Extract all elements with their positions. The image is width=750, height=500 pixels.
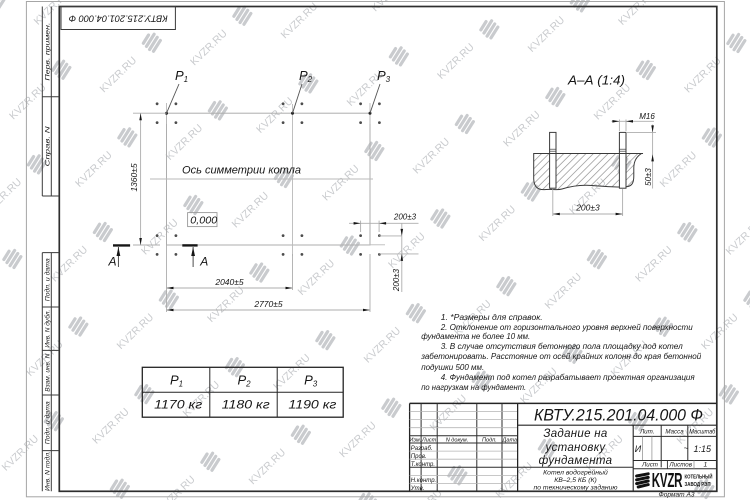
svg-text:Изм.: Изм. <box>409 437 421 443</box>
svg-text:1190 кг: 1190 кг <box>288 398 336 412</box>
svg-text:4. Фундамент под котел разраб: 4. Фундамент под котел разрабатывает про… <box>441 372 695 382</box>
svg-text:установку: установку <box>545 442 607 454</box>
svg-text:A: A <box>199 255 208 269</box>
svg-text:подушки 500 мм.: подушки 500 мм. <box>421 362 484 372</box>
svg-text:Ось симметрии котла: Ось симметрии котла <box>182 165 301 177</box>
svg-text:КВ–2,5 КБ (К): КВ–2,5 КБ (К) <box>554 477 597 484</box>
svg-text:Утв.: Утв. <box>410 486 425 492</box>
svg-text:ЗАВОД РЭП: ЗАВОД РЭП <box>685 482 711 488</box>
svg-text:P2: P2 <box>237 373 251 389</box>
svg-text:1. *Размеры для справок.: 1. *Размеры для справок. <box>441 312 543 322</box>
svg-text:Котел водогрейный: Котел водогрейный <box>543 469 608 477</box>
svg-text:P1: P1 <box>170 373 183 389</box>
svg-text:2770±5: 2770±5 <box>253 299 283 309</box>
svg-text:Разраб.: Разраб. <box>411 446 433 452</box>
svg-text:КОТЕЛЬНЫЙ: КОТЕЛЬНЫЙ <box>685 473 713 481</box>
svg-text:N докум.: N докум. <box>446 437 469 443</box>
svg-text:Т.контр.: Т.контр. <box>411 462 435 468</box>
svg-text:200±3: 200±3 <box>575 203 600 213</box>
svg-text:КВТУ.215.201.04.000 Ф: КВТУ.215.201.04.000 Ф <box>534 407 703 425</box>
svg-text:Перв. примен.: Перв. примен. <box>44 22 51 80</box>
svg-text:1: 1 <box>704 462 708 469</box>
svg-text:Подп.: Подп. <box>482 437 497 443</box>
svg-text:P3: P3 <box>377 68 391 84</box>
svg-text:КВТУ.215.201.04.000 Ф: КВТУ.215.201.04.000 Ф <box>68 13 167 24</box>
svg-text:фундамента не более 10 мм.: фундамента не более 10 мм. <box>421 331 530 341</box>
svg-text:50±3: 50±3 <box>644 168 653 186</box>
svg-text:0,000: 0,000 <box>190 215 217 227</box>
svg-text:KVZR: KVZR <box>652 470 683 492</box>
svg-text:Лит.: Лит. <box>639 429 655 436</box>
svg-text:Масса: Масса <box>665 429 684 436</box>
svg-text:1170 кг: 1170 кг <box>154 398 202 412</box>
svg-text:1180 кг: 1180 кг <box>222 398 270 412</box>
svg-text:1:15: 1:15 <box>694 444 713 454</box>
svg-text:фундамента: фундамента <box>539 455 613 467</box>
svg-text:забетонировать. Расстояние от: забетонировать. Расстояние от осей крайн… <box>420 351 701 361</box>
svg-text:200±3: 200±3 <box>393 213 417 222</box>
svg-text:Листов: Листов <box>668 462 692 469</box>
svg-text:1360±5: 1360±5 <box>129 163 139 192</box>
svg-text:M16: M16 <box>639 112 655 121</box>
svg-text:P3: P3 <box>304 373 318 389</box>
svg-text:по нагрузкам на фундамент.: по нагрузкам на фундамент. <box>421 382 526 392</box>
svg-text:Лист: Лист <box>641 462 658 469</box>
svg-text:P1: P1 <box>175 68 188 84</box>
svg-text:Дата: Дата <box>501 437 517 443</box>
svg-text:А–А (1:4): А–А (1:4) <box>567 73 625 88</box>
svg-text:~: ~ <box>684 444 689 453</box>
svg-text:A: A <box>107 255 116 269</box>
svg-text:Подп. и дата: Подп. и дата <box>43 401 51 444</box>
svg-text:2040±5: 2040±5 <box>214 277 244 287</box>
svg-text:Инв. N подл.: Инв. N подл. <box>43 451 51 491</box>
svg-text:200±3: 200±3 <box>392 268 401 292</box>
svg-text:P2: P2 <box>299 68 313 84</box>
svg-text:3. В случае отсутствия бетонн: 3. В случае отсутствия бетонного пола пл… <box>441 341 683 351</box>
svg-text:И: И <box>635 444 642 454</box>
svg-text:Н.контр.: Н.контр. <box>411 478 436 484</box>
svg-text:Задание на: Задание на <box>543 428 607 440</box>
svg-text:по техническому заданию: по техническому заданию <box>534 484 618 492</box>
svg-text:Пров.: Пров. <box>411 454 427 460</box>
svg-text:Взам. инв. N: Взам. инв. N <box>44 353 51 391</box>
svg-text:Лист: Лист <box>421 437 437 443</box>
svg-text:Формат А3: Формат А3 <box>659 492 695 499</box>
svg-text:Подп. и дата: Подп. и дата <box>43 258 51 301</box>
svg-text:Справ. N: Справ. N <box>44 126 51 166</box>
svg-text:Масштаб: Масштаб <box>689 429 715 436</box>
svg-text:Инв. N дубл.: Инв. N дубл. <box>43 310 51 348</box>
